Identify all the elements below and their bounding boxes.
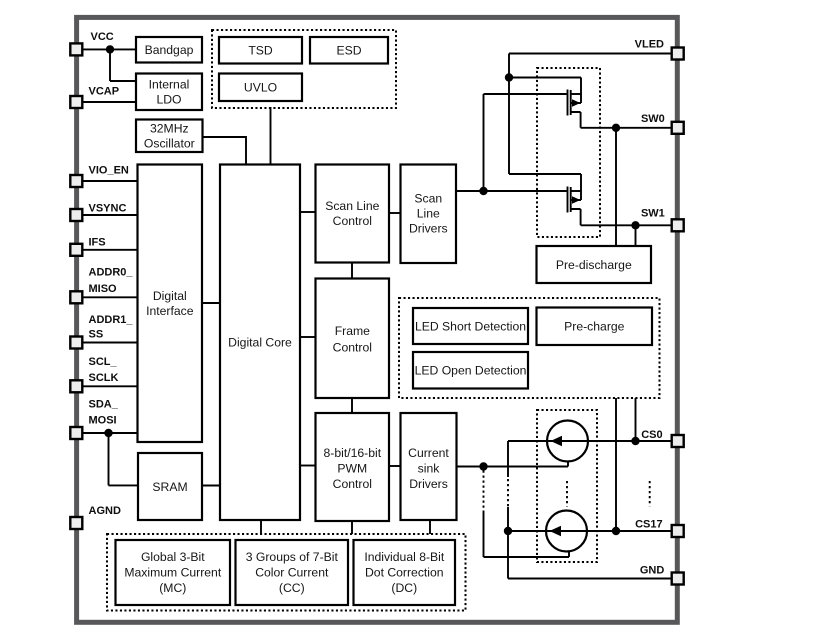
- svg-text:SS: SS: [89, 328, 104, 340]
- svg-text:sink: sink: [418, 461, 441, 475]
- svg-text:Maximum Current: Maximum Current: [124, 565, 221, 579]
- svg-text:VCC: VCC: [91, 31, 114, 43]
- svg-text:VLED: VLED: [635, 39, 664, 51]
- svg-text:Digital Core: Digital Core: [228, 336, 292, 350]
- svg-text:SW1: SW1: [641, 208, 665, 220]
- svg-text:Global 3-Bit: Global 3-Bit: [141, 550, 205, 564]
- svg-text:(DC): (DC): [391, 581, 417, 595]
- svg-text:TSD: TSD: [248, 44, 273, 58]
- svg-text:ADDR0_: ADDR0_: [89, 267, 134, 279]
- svg-text:8-bit/16-bit: 8-bit/16-bit: [324, 446, 382, 460]
- svg-text:(CC): (CC): [279, 581, 305, 595]
- svg-text:Control: Control: [333, 214, 372, 228]
- svg-text:ESD: ESD: [336, 44, 361, 58]
- svg-text:LDO: LDO: [156, 92, 181, 106]
- svg-text:VCAP: VCAP: [89, 86, 120, 98]
- svg-text:LED Open Detection: LED Open Detection: [415, 364, 527, 378]
- svg-text:CS0: CS0: [641, 429, 662, 441]
- svg-text:Digital: Digital: [153, 289, 187, 303]
- svg-text:AGND: AGND: [89, 505, 121, 517]
- svg-text:Drivers: Drivers: [409, 477, 448, 491]
- svg-text:Current: Current: [408, 446, 449, 460]
- svg-text:Dot Correction: Dot Correction: [365, 565, 444, 579]
- svg-text:VIO_EN: VIO_EN: [89, 165, 129, 177]
- svg-text:Pre-charge: Pre-charge: [564, 320, 625, 334]
- svg-text:PWM: PWM: [337, 461, 367, 475]
- svg-text:Pre-discharge: Pre-discharge: [556, 258, 632, 272]
- svg-text:MISO: MISO: [89, 283, 118, 295]
- svg-text:SDA_: SDA_: [89, 399, 119, 411]
- svg-text:MOSI: MOSI: [89, 415, 117, 427]
- svg-text:(MC): (MC): [159, 581, 186, 595]
- svg-text:VSYNC: VSYNC: [89, 203, 127, 215]
- svg-text:Control: Control: [333, 477, 372, 491]
- svg-text:UVLO: UVLO: [244, 81, 277, 95]
- svg-text:Scan: Scan: [414, 192, 442, 206]
- svg-text:Scan Line: Scan Line: [325, 199, 379, 213]
- svg-text:CS17: CS17: [635, 519, 663, 531]
- svg-text:Color Current: Color Current: [255, 565, 329, 579]
- svg-text:Frame: Frame: [335, 324, 370, 338]
- svg-text:SW0: SW0: [641, 113, 665, 125]
- svg-text:GND: GND: [640, 565, 665, 577]
- svg-text:SRAM: SRAM: [152, 480, 187, 494]
- svg-text:Control: Control: [333, 340, 372, 354]
- svg-text:3 Groups of 7-Bit: 3 Groups of 7-Bit: [246, 550, 339, 564]
- svg-text:Drivers: Drivers: [409, 222, 448, 236]
- svg-text:Line: Line: [417, 207, 440, 221]
- svg-text:Internal: Internal: [149, 77, 190, 91]
- svg-text:Individual 8-Bit: Individual 8-Bit: [364, 550, 445, 564]
- svg-text:SCL_: SCL_: [89, 356, 118, 368]
- svg-text:Interface: Interface: [146, 304, 194, 318]
- svg-text:32MHz: 32MHz: [150, 121, 189, 135]
- svg-text:IFS: IFS: [89, 237, 106, 249]
- svg-text:LED Short Detection: LED Short Detection: [415, 319, 526, 333]
- svg-text:Oscillator: Oscillator: [144, 136, 195, 150]
- svg-text:SCLK: SCLK: [89, 372, 119, 384]
- svg-text:ADDR1_: ADDR1_: [89, 314, 134, 326]
- svg-text:Bandgap: Bandgap: [145, 43, 194, 57]
